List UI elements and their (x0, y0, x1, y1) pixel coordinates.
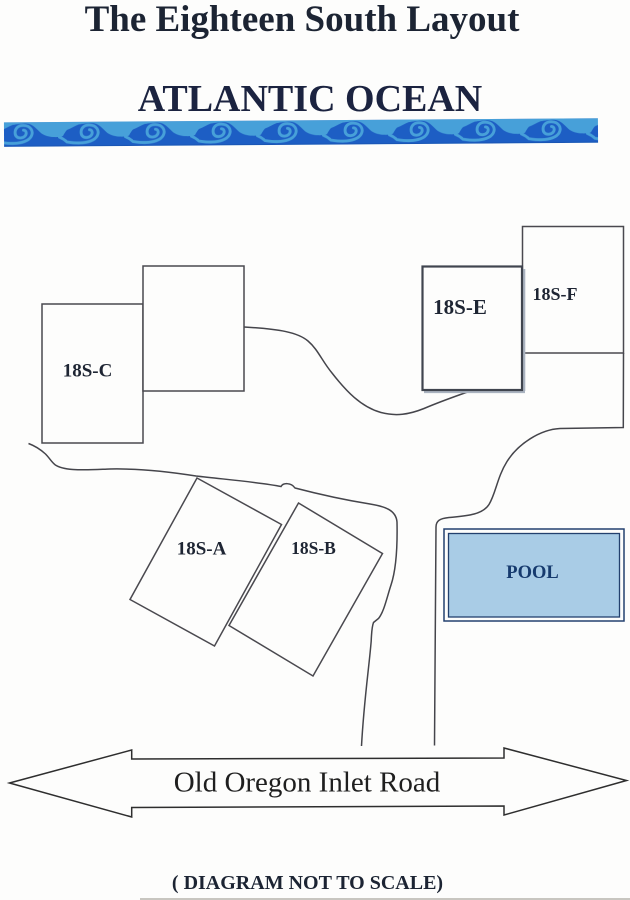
svg-text:POOL: POOL (506, 563, 558, 583)
svg-text:18S-A: 18S-A (177, 539, 227, 560)
svg-text:18S-B: 18S-B (291, 538, 336, 558)
svg-text:18S-E: 18S-E (433, 295, 487, 319)
svg-text:The Eighteen South Layout: The Eighteen South Layout (85, 0, 521, 40)
svg-text:ATLANTIC OCEAN: ATLANTIC OCEAN (138, 78, 483, 120)
svg-text:18S-F: 18S-F (533, 284, 578, 304)
svg-text:18S-C: 18S-C (63, 361, 113, 382)
svg-text:Old Oregon Inlet Road: Old Oregon Inlet Road (174, 767, 441, 799)
svg-text:( DIAGRAM NOT TO SCALE): ( DIAGRAM NOT TO SCALE) (172, 872, 443, 894)
